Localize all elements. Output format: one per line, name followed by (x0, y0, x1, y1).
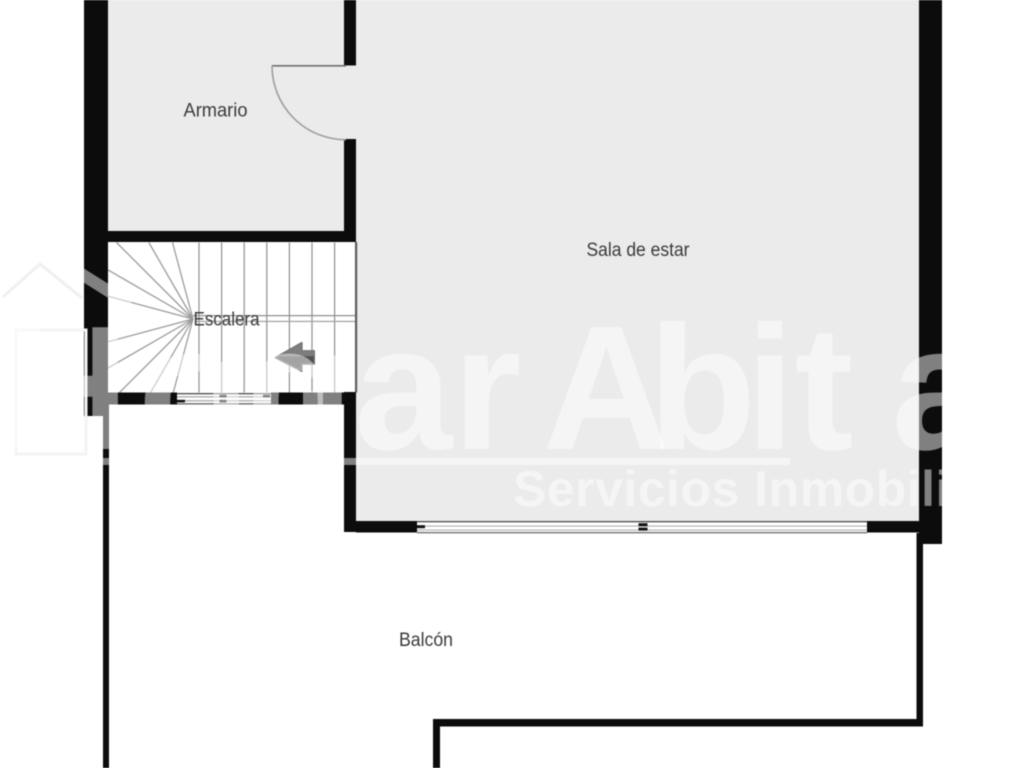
svg-text:Sala de estar: Sala de estar (587, 240, 691, 261)
svg-text:Balcón: Balcón (399, 630, 453, 651)
svg-text:Armario: Armario (184, 101, 248, 122)
